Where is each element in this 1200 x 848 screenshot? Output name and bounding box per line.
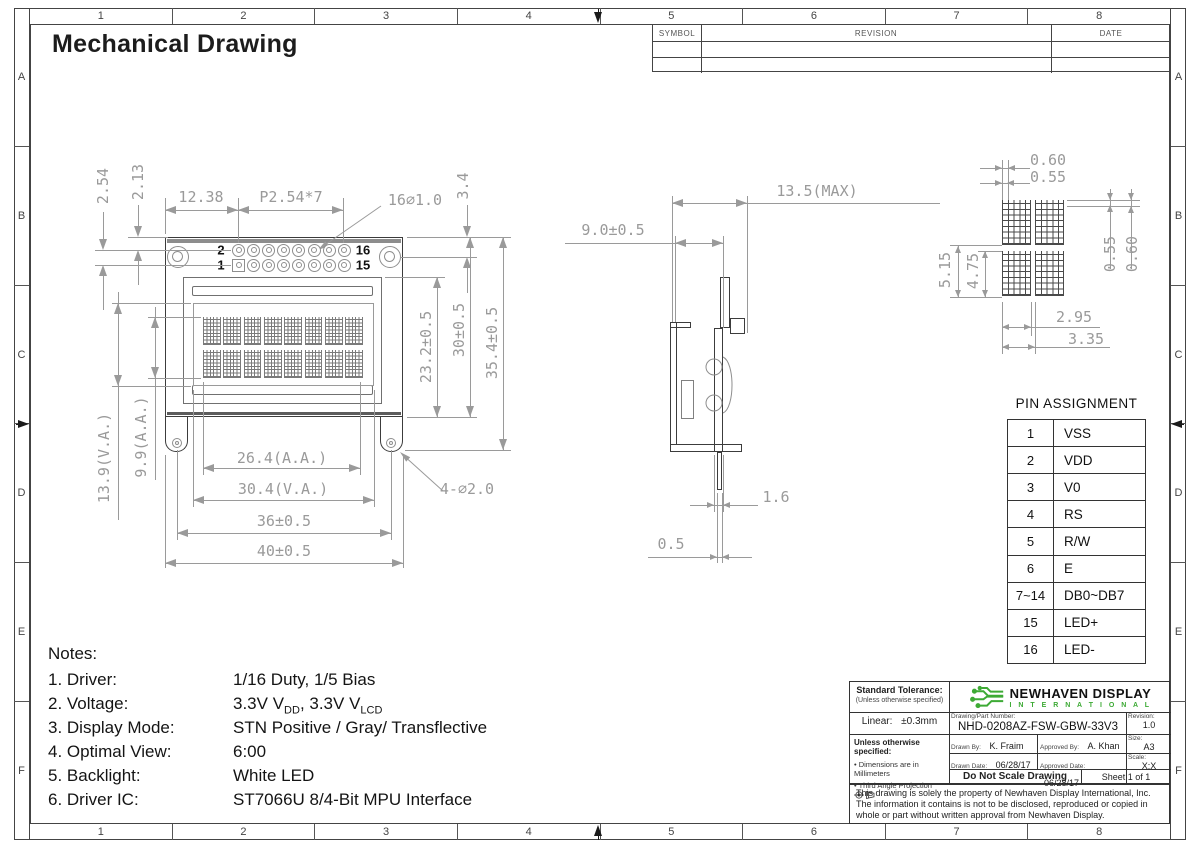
dim-line (565, 243, 723, 244)
logo-cell: NEWHAVEN DISPLAY I N T E R N A T I O N A… (950, 683, 1170, 711)
dim-arrow (134, 250, 142, 261)
pin-table-row: 1VSS (1008, 420, 1145, 446)
part-number-value: NHD-0208AZ-FSW-GBW-33V3 (951, 721, 1125, 733)
note-value: White LED (233, 766, 314, 785)
dim-line (405, 450, 511, 451)
pin-table-row: 16LED- (1008, 636, 1145, 663)
dim-line (103, 212, 104, 239)
ruler-col-4: 4 (458, 824, 601, 840)
standard-tolerance-cell: Standard Tolerance: (Unless otherwise sp… (852, 685, 947, 711)
dim-line (391, 450, 392, 540)
dim-arrow (1107, 193, 1113, 200)
dim-arrow (722, 554, 729, 560)
dim-line (193, 500, 374, 501)
revision-col-revision: REVISION (701, 25, 1051, 41)
dim-bezel-height: 23.2±0.5 (417, 309, 435, 385)
pin-circle-bottom-row-hole (251, 262, 257, 268)
dim-line (723, 236, 724, 328)
part-number-cell: Drawing/Part Number: NHD-0208AZ-FSW-GBW-… (951, 713, 1125, 733)
dim-line (1002, 347, 1110, 348)
dim-arrow (238, 206, 249, 214)
pin-number: 4 (1008, 501, 1054, 527)
dim-arrow (723, 502, 730, 508)
dim-arrow (114, 375, 122, 386)
disclaimer-line-1: This drawing is solely the property of N… (856, 788, 1163, 799)
pin-table-title: PIN ASSIGNMENT (1007, 396, 1146, 411)
dim-arrow (955, 246, 961, 253)
dim-arrow (1128, 206, 1134, 213)
ruler-col-4: 4 (458, 8, 601, 24)
dim-arrow (463, 257, 471, 268)
ruler-row-D: D (1171, 424, 1186, 563)
dim-arrow (499, 237, 507, 248)
dim-arrow (710, 554, 717, 560)
note-value: 1/16 Duty, 1/5 Bias (233, 670, 375, 689)
dim-line (1035, 302, 1036, 354)
note-row: 4. Optimal View:6:00 (48, 742, 728, 766)
note-row: 2. Voltage:3.3V VDD, 3.3V VLCD (48, 694, 728, 718)
dim-arrow (227, 206, 238, 214)
pin-function: RS (1054, 501, 1145, 527)
pin-function: LED+ (1054, 610, 1145, 636)
dim-pcb-thickness: 1.6 (760, 488, 791, 506)
pin-table-row: 5R/W (1008, 527, 1145, 554)
dim-arrow (1008, 165, 1015, 171)
dim-arrow (114, 303, 122, 314)
front-bezel-slot-bottom (192, 385, 373, 395)
dim-row-pitch: 5.15 (936, 250, 954, 290)
dim-aa-width: 26.4(A.A.) (235, 449, 329, 467)
bullet-dimensions: • Dimensions are in Millimeters (854, 760, 948, 778)
character-cell (223, 317, 241, 345)
dim-line (112, 303, 191, 304)
character-cell (203, 317, 221, 345)
note-label: 3. Display Mode: (48, 718, 233, 738)
character-cell (284, 317, 302, 345)
dim-line (467, 205, 468, 226)
pin-number: 6 (1008, 556, 1054, 582)
dim-arrow (1007, 180, 1014, 186)
dim-arrow (134, 226, 142, 237)
dim-arrow (463, 226, 471, 237)
note-label: 4. Optimal View: (48, 742, 233, 762)
dim-line (950, 297, 1002, 298)
side-pin-upper (720, 277, 730, 328)
dim-line (672, 203, 940, 204)
scale-cell: Scale: X:X (1128, 754, 1170, 768)
dim-line (437, 277, 438, 417)
pin-function: DB0~DB7 (1054, 583, 1145, 609)
revision-table-line (653, 41, 1171, 42)
note-label: 2. Voltage: (48, 694, 233, 714)
title-block-line (1037, 734, 1038, 769)
linear-tolerance-cell: Linear: ±0.3mm (852, 716, 947, 732)
linear-label: Linear: (862, 716, 893, 727)
note-value: ST7066U 8/4-Bit MPU Interface (233, 790, 472, 809)
linear-value: ±0.3mm (901, 716, 937, 727)
pin-circle-top-row-hole (281, 247, 287, 253)
ruler-row-A: A (14, 8, 29, 147)
note-value: 3.3V VDD, 3.3V VLCD (233, 694, 382, 713)
side-bezel-face (670, 322, 677, 452)
ruler-col-2: 2 (173, 824, 316, 840)
dim-arrow (594, 12, 602, 23)
dim-line (165, 563, 403, 564)
approved-date-label: Approved Date: (1040, 763, 1085, 770)
dim-line (165, 455, 166, 568)
pin-assignment-table: 1VSS2VDD3V04RS5R/W6E7~14DB0~DB715LED+16L… (1007, 419, 1146, 664)
dim-line (103, 276, 104, 310)
dim-char-height: 4.75 (964, 251, 982, 291)
pin-function: VDD (1054, 447, 1145, 473)
dim-arrow (1028, 344, 1035, 350)
dim-line (747, 196, 748, 333)
ruler-col-3: 3 (315, 824, 458, 840)
pin-table-row: 7~14DB0~DB7 (1008, 582, 1145, 609)
dim-line (193, 390, 194, 507)
dim-line (374, 390, 375, 507)
dim-body-height: 30±0.5 (450, 301, 468, 359)
dim-dot-pitch-x: 0.60 (1028, 151, 1068, 169)
pin-function: R/W (1054, 528, 1145, 554)
dim-arrow (982, 290, 988, 297)
approved-date-cell: Approved Date: 06/28/17 (1040, 755, 1124, 768)
dim-va-height: 13.9(V.A.) (95, 411, 113, 505)
drawn-by-label: Drawn By: (951, 744, 981, 751)
pin-table-row: 3V0 (1008, 473, 1145, 500)
dim-arrow (1024, 324, 1031, 330)
dim-line (343, 198, 344, 243)
note-row: 6. Driver IC:ST7066U 8/4-Bit MPU Interfa… (48, 790, 728, 814)
dim-line (138, 261, 139, 285)
pin-circle-top-row-hole (236, 247, 242, 253)
approved-by-label: Approved By: (1040, 744, 1079, 751)
side-pin-lower (717, 452, 722, 490)
dim-aa-height: 9.9(A.A.) (132, 394, 150, 479)
pin-circle-bottom-row-hole (296, 262, 302, 268)
pin-function: V0 (1054, 474, 1145, 500)
dim-line (717, 493, 718, 563)
notes-heading: Notes: (48, 644, 97, 664)
dim-arrow (707, 502, 714, 508)
dim-line (203, 468, 360, 469)
dim-max-depth: 13.5(MAX) (774, 182, 859, 200)
ruler-row-B: B (14, 147, 29, 286)
approved-by-value: A. Khan (1087, 741, 1119, 751)
revision-cell: Revision: 1.0 (1128, 713, 1170, 733)
pin-table-row: 6E (1008, 555, 1145, 582)
character-cell (345, 317, 363, 345)
dim-arrow (712, 239, 723, 247)
dim-arrow (995, 180, 1002, 186)
ruler-row-C: C (1171, 286, 1186, 425)
dim-arrow (995, 165, 1002, 171)
dim-arrow (332, 206, 343, 214)
side-pin-insulator (730, 318, 745, 334)
dim-arrow (1107, 205, 1113, 212)
size-value: A3 (1128, 742, 1170, 752)
dim-arrow (380, 529, 391, 537)
dim-line (1067, 200, 1140, 201)
dim-va-width: 30.4(V.A.) (236, 480, 330, 498)
pin-number: 2 (1008, 447, 1054, 473)
dim-arrow (363, 496, 374, 504)
pin-number: 1 (1008, 420, 1054, 446)
character-cell (325, 317, 343, 345)
dim-line (118, 292, 119, 520)
dim-arrow (433, 406, 441, 417)
dim-line (503, 237, 504, 450)
size-label: Size: (1128, 735, 1170, 742)
character-cell (325, 350, 343, 378)
character-cell (305, 350, 323, 378)
part-number-label: Drawing/Part Number: (951, 713, 1125, 720)
pin-circle-top-row-hole (266, 247, 272, 253)
drawn-by-value: K. Fraim (989, 741, 1023, 751)
dim-pin-pitch-x: P2.54*7 (257, 188, 324, 206)
dim-depth: 9.0±0.5 (579, 221, 646, 239)
character-cell (345, 350, 363, 378)
character-cell (264, 350, 282, 378)
do-not-scale-cell: Do Not Scale Drawing (950, 771, 1080, 785)
mechanical-drawing-sheet: 12345678 12345678 ABCDEF ABCDEF Mechanic… (0, 0, 1200, 848)
pin-pad-1-square (232, 259, 245, 272)
dim-line (672, 196, 673, 322)
ruler-col-5: 5 (601, 8, 744, 24)
dim-hole-top-offset: 3.4 (454, 170, 472, 201)
pin-function: VSS (1054, 420, 1145, 446)
dim-arrow (165, 559, 176, 567)
ruler-col-6: 6 (743, 824, 886, 840)
dim-arrow (1002, 344, 1009, 350)
dim-line (407, 237, 511, 238)
revision-table-line (653, 57, 1171, 58)
dim-arrow (675, 239, 686, 247)
dim-char-pitch: 3.35 (1066, 330, 1106, 348)
dim-line (980, 183, 1030, 184)
note-label: 5. Backlight: (48, 766, 233, 786)
note-value: 6:00 (233, 742, 266, 761)
drawn-date-label: Drawn Date: (951, 763, 987, 770)
dim-line (238, 198, 239, 243)
revision-label: Revision: (1128, 713, 1170, 720)
dim-arrow (955, 290, 961, 297)
disclaimer-line-3: whole or part without written approval f… (856, 810, 1163, 821)
character-cell (223, 350, 241, 378)
dim-line (128, 237, 168, 238)
ruler-col-8: 8 (1028, 824, 1170, 840)
dim-line (1031, 302, 1032, 336)
ruler-row-A: A (1171, 8, 1186, 147)
note-row: 1. Driver:1/16 Duty, 1/5 Bias (48, 670, 728, 694)
revision-col-symbol: SYMBOL (653, 25, 701, 41)
dim-line (467, 268, 468, 293)
ruler-col-3: 3 (315, 8, 458, 24)
dim-arrow (99, 265, 107, 276)
dim-line (165, 198, 166, 234)
mount-hole-top-left-inner (172, 251, 183, 262)
dim-arrow (392, 559, 403, 567)
disclaimer-box: This drawing is solely the property of N… (849, 784, 1170, 824)
standard-tolerance-title: Standard Tolerance: (852, 685, 947, 695)
pin-pad-1-hole (236, 262, 242, 268)
pin-table-row: 2VDD (1008, 446, 1145, 473)
dim-arrow (982, 251, 988, 258)
ruler-col-1: 1 (30, 824, 173, 840)
revision-table: SYMBOL REVISION DATE (652, 24, 1170, 72)
dim-arrow (203, 464, 214, 472)
character-detail-cell (1035, 200, 1064, 245)
front-character-matrix (203, 317, 363, 378)
bullet-dimensions-text: Dimensions are in Millimeters (854, 760, 919, 778)
dim-dot-width: 0.55 (1028, 168, 1068, 186)
dim-pin-thickness: 0.5 (655, 535, 686, 553)
dim-dot-pitch-y: 0.60 (1123, 234, 1141, 274)
mount-hole-ear-left-inner (175, 441, 179, 445)
pin-table-row: 4RS (1008, 500, 1145, 527)
drawn-date-cell: Drawn Date: 06/28/17 (951, 755, 1035, 768)
ruler-row-F: F (14, 702, 29, 840)
pin-circle-top-row-hole (311, 247, 317, 253)
ruler-col-1: 1 (30, 8, 173, 24)
ruler-col-5: 5 (601, 824, 744, 840)
dim-arrow (99, 239, 107, 250)
ruler-col-8: 8 (1028, 8, 1170, 24)
character-detail-cell (1035, 251, 1064, 296)
dim-pin-pitch-v: 2.54 (94, 166, 112, 206)
character-cell (305, 317, 323, 345)
character-detail-cell (1002, 251, 1031, 296)
dim-line (407, 417, 477, 418)
scale-label: Scale: (1128, 754, 1170, 761)
dim-line (1110, 189, 1111, 269)
character-detail-matrix (1002, 200, 1064, 296)
dim-mount-holes: 4-∅2.0 (438, 480, 496, 498)
dim-arrow (177, 529, 188, 537)
note-label: 1. Driver: (48, 670, 233, 690)
title-block-line (850, 734, 1171, 735)
ruler-row-C: C (14, 286, 29, 425)
dim-char-width: 2.95 (1054, 308, 1094, 326)
drawn-date-value: 06/28/17 (996, 760, 1031, 770)
note-value: STN Positive / Gray/ Transflective (233, 718, 487, 737)
pin-circle-bottom-row-hole (266, 262, 272, 268)
ruler-col-7: 7 (886, 8, 1029, 24)
dim-line (980, 168, 1030, 169)
dim-arrow (349, 464, 360, 472)
dim-arrow (1002, 324, 1009, 330)
dim-line (177, 533, 391, 534)
dim-line (360, 382, 361, 475)
ruler-row-D: D (14, 424, 29, 563)
dim-line (95, 250, 231, 251)
side-bezel-bottom-lip (670, 444, 742, 452)
dim-line (648, 557, 752, 558)
pin-number: 16 (1008, 637, 1054, 663)
side-lcd-glass (681, 380, 694, 419)
dim-line (177, 450, 178, 540)
revision-value: 1.0 (1128, 720, 1170, 730)
dim-arrow (466, 406, 474, 417)
dim-arrow (466, 237, 474, 248)
dim-line (112, 386, 191, 387)
ruler-row-F: F (1171, 702, 1186, 840)
unless-title: Unless otherwise specified: (854, 738, 948, 756)
pin-circle-top-row-hole (251, 247, 257, 253)
note-label: 6. Driver IC: (48, 790, 233, 810)
mount-hole-top-right-inner (384, 251, 395, 262)
scale-value: X:X (1128, 761, 1170, 771)
character-cell (264, 317, 282, 345)
pin-number: 3 (1008, 474, 1054, 500)
pin-label-16: 16 (356, 244, 370, 257)
dim-line (403, 455, 404, 568)
revision-col-date: DATE (1051, 25, 1171, 41)
dim-arrow (736, 199, 747, 207)
dim-line (1002, 160, 1003, 200)
character-cell (284, 350, 302, 378)
pin-number: 7~14 (1008, 583, 1054, 609)
note-row: 3. Display Mode:STN Positive / Gray/ Tra… (48, 718, 728, 742)
company-name: NEWHAVEN DISPLAY (1010, 686, 1152, 701)
ruler-row-E: E (1171, 563, 1186, 702)
title-block: Standard Tolerance: (Unless otherwise sp… (849, 681, 1170, 784)
dim-arrow (151, 317, 159, 328)
dim-arrow (594, 825, 602, 836)
note-row: 5. Backlight:White LED (48, 766, 728, 790)
dim-arrow (1171, 420, 1182, 428)
newhaven-logo-icon (969, 685, 1005, 710)
dim-line (165, 210, 343, 211)
approved-by-cell: Approved By: A. Khan (1040, 736, 1124, 752)
dim-overall-height: 35.4±0.5 (483, 305, 501, 381)
dim-arrow (193, 496, 204, 504)
pin-circle-bottom-row-hole (281, 262, 287, 268)
dim-mount-width: 36±0.5 (255, 512, 313, 530)
ruler-row-E: E (14, 563, 29, 702)
pin-number: 15 (1008, 610, 1054, 636)
dim-arrow (1128, 193, 1134, 200)
disclaimer-line-2: The information it contains is not to be… (856, 799, 1163, 810)
ruler-col-2: 2 (173, 8, 316, 24)
dim-line (1002, 327, 1100, 328)
dim-line (155, 307, 156, 480)
pin-function: E (1054, 556, 1145, 582)
pin-number: 5 (1008, 528, 1054, 554)
page-title: Mechanical Drawing (52, 30, 298, 59)
ruler-col-6: 6 (743, 8, 886, 24)
dim-line (1131, 189, 1132, 269)
drawn-by-cell: Drawn By: K. Fraim (951, 736, 1035, 752)
pin-circle-top-row-hole (296, 247, 302, 253)
pin-circle-bottom-row-hole (311, 262, 317, 268)
character-cell (244, 350, 262, 378)
size-cell: Size: A3 (1128, 735, 1170, 751)
pin-function: LED- (1054, 637, 1145, 663)
ruler-row-B: B (1171, 147, 1186, 286)
pin-table-row: 15LED+ (1008, 609, 1145, 636)
dim-arrow (151, 367, 159, 378)
dim-arrow (672, 199, 683, 207)
company-subtitle: I N T E R N A T I O N A L (1010, 702, 1152, 709)
dim-arrow (433, 277, 441, 288)
dim-arrow (18, 420, 29, 428)
dim-line (203, 382, 204, 475)
pin-label-15: 15 (356, 259, 370, 272)
ruler-col-7: 7 (886, 824, 1029, 840)
character-detail-cell (1002, 200, 1031, 245)
mount-hole-ear-right-inner (389, 441, 393, 445)
